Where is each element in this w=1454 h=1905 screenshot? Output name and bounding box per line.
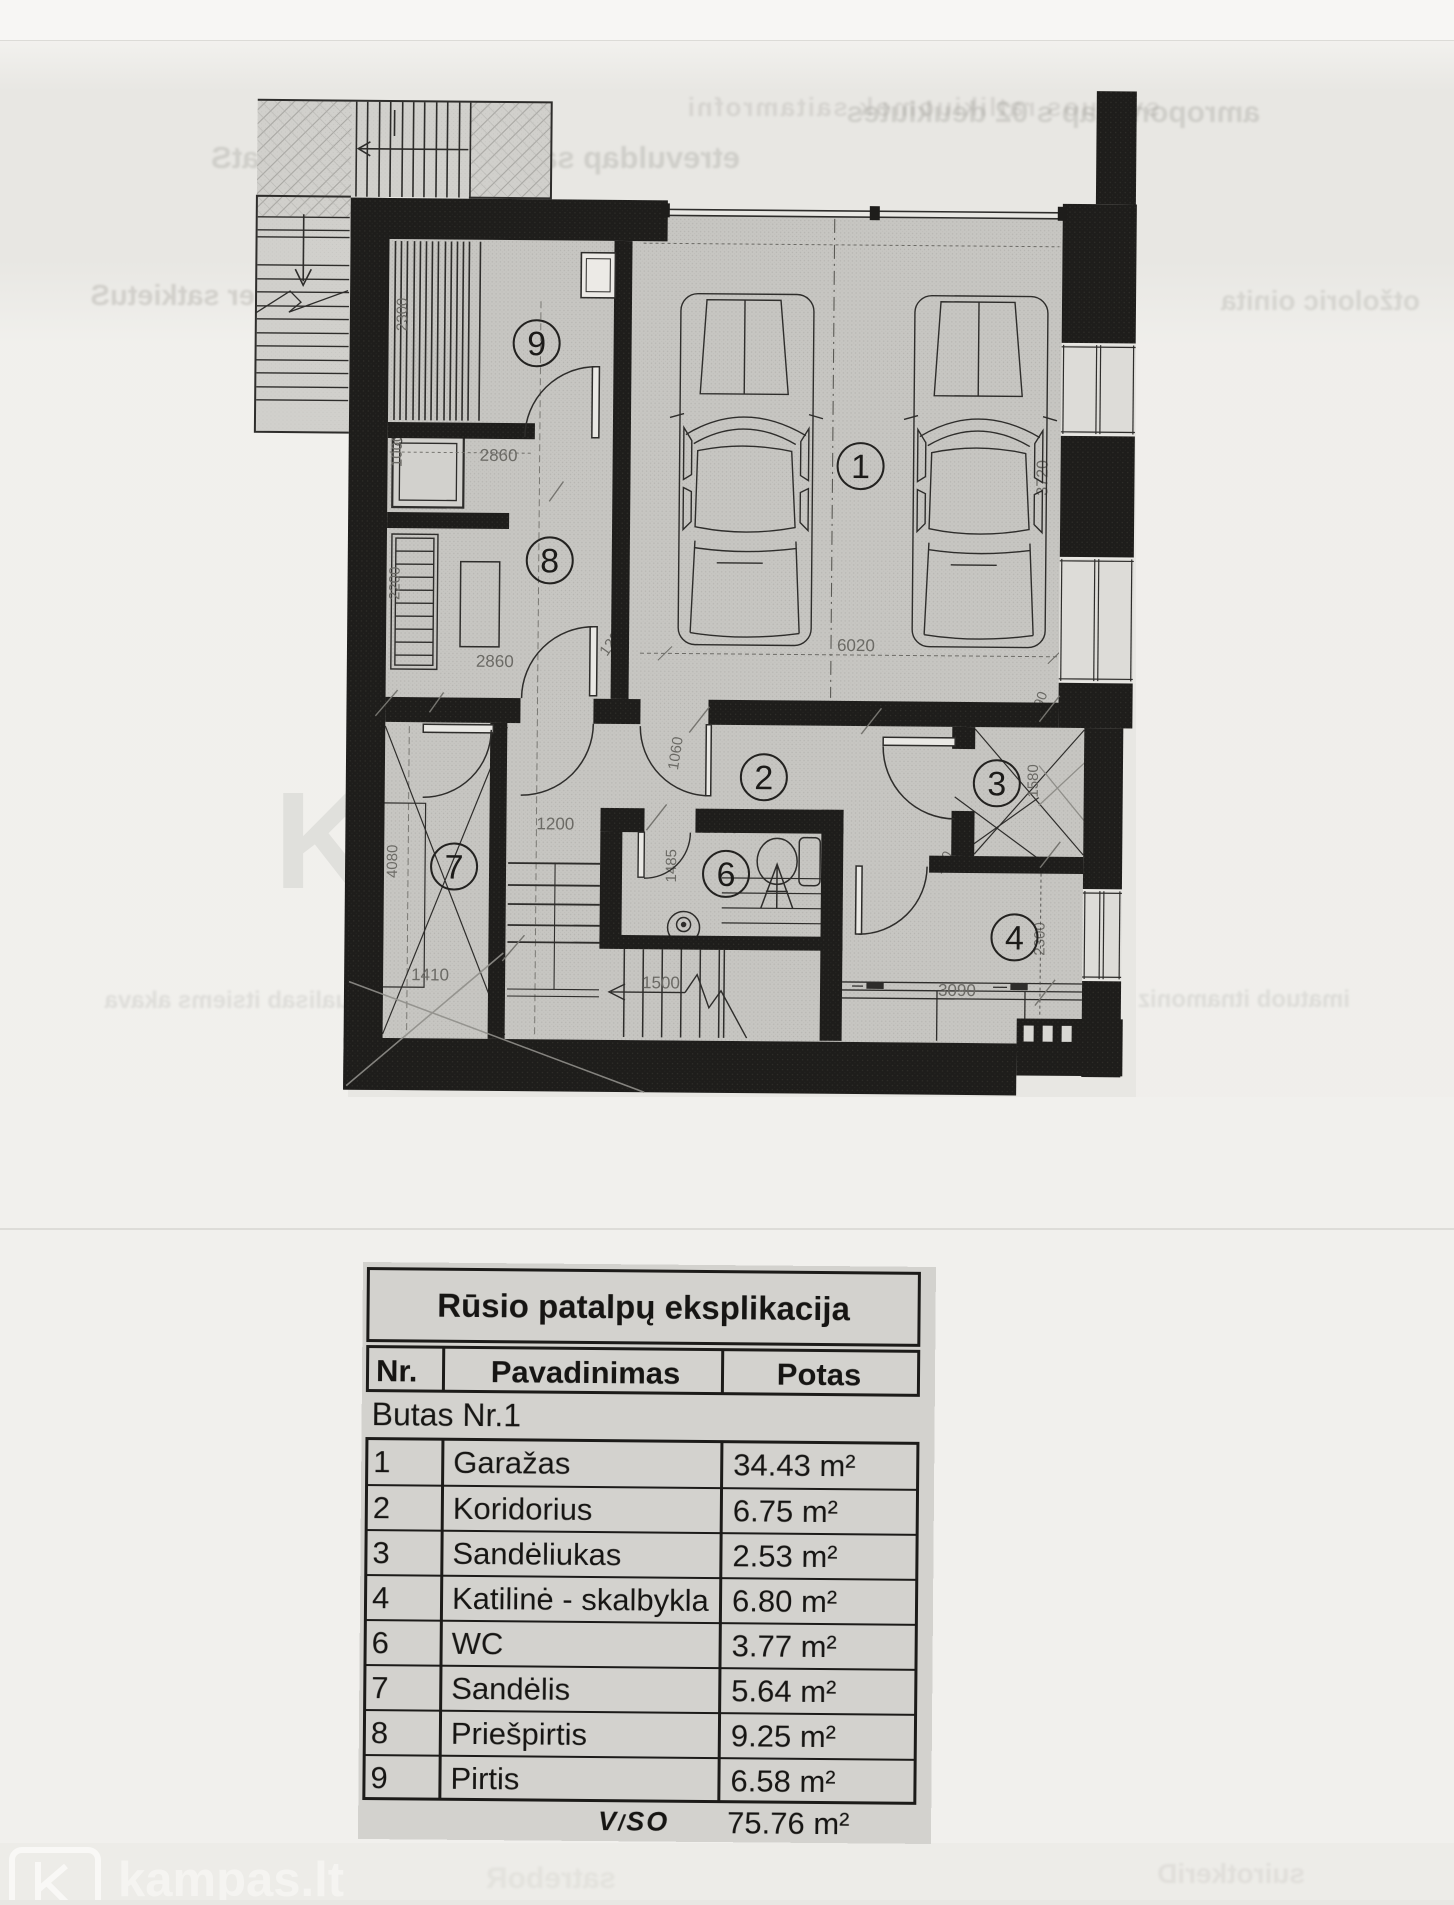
svg-text:4080: 4080 bbox=[384, 845, 401, 879]
svg-text:2860: 2860 bbox=[480, 446, 518, 465]
svg-text:9: 9 bbox=[527, 325, 546, 363]
svg-text:7: 7 bbox=[444, 848, 463, 886]
svg-text:1: 1 bbox=[851, 448, 870, 486]
svg-text:1200: 1200 bbox=[536, 814, 574, 833]
svg-text:2860: 2860 bbox=[476, 652, 514, 671]
svg-text:6020: 6020 bbox=[837, 636, 875, 655]
svg-text:2200: 2200 bbox=[386, 567, 403, 601]
svg-text:1580: 1580 bbox=[1025, 764, 1042, 798]
svg-text:8: 8 bbox=[540, 542, 559, 580]
svg-text:kampas.lt: kampas.lt bbox=[118, 1853, 344, 1900]
svg-text:1500: 1500 bbox=[642, 973, 680, 992]
svg-text:3090: 3090 bbox=[938, 981, 976, 1000]
svg-text:1485: 1485 bbox=[663, 849, 680, 883]
svg-text:1410: 1410 bbox=[411, 965, 449, 984]
svg-text:2: 2 bbox=[754, 759, 773, 797]
svg-text:1000: 1000 bbox=[389, 434, 406, 468]
svg-text:4: 4 bbox=[1005, 919, 1024, 957]
svg-text:2300: 2300 bbox=[394, 298, 411, 332]
svg-text:3: 3 bbox=[987, 765, 1006, 803]
svg-text:6: 6 bbox=[716, 856, 735, 894]
